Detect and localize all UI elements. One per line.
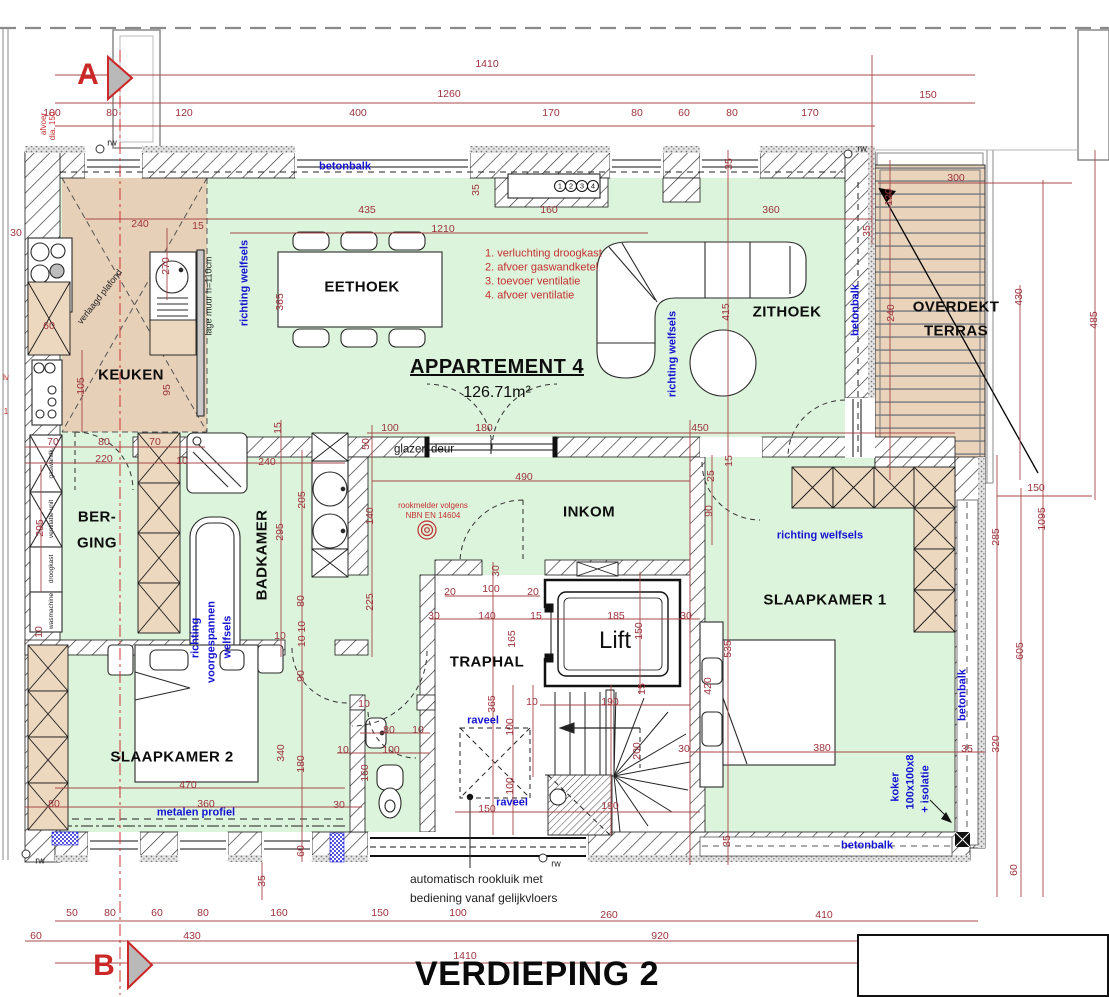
construction-annotation: raveel (496, 798, 528, 809)
dimension-label: 150 (634, 622, 645, 640)
room-label: ZITHOEK (753, 305, 822, 320)
room-label: BER- (78, 510, 116, 525)
text-annotation: verlaagd plafond (76, 268, 124, 326)
dimension-label: 160 (540, 205, 558, 216)
room-label: SLAAPKAMER 1 (763, 593, 886, 608)
dimension-label: 535 (723, 640, 734, 658)
legend-item: 3. toevoer ventilatie (485, 277, 580, 288)
construction-annotation: betonbalk (319, 162, 371, 173)
dimension-label: 35 (471, 184, 482, 196)
room-label: OVERDEKT (913, 300, 1000, 315)
construction-annotation: richting welfsels (668, 311, 679, 397)
dimension-label: 10 (176, 456, 188, 467)
dimension-label: 260 (600, 910, 618, 921)
dimension-label: 365 (275, 293, 286, 311)
dimension-label: 60 (30, 931, 42, 942)
dimension-label: 295 (35, 519, 46, 537)
dimension-label: 15 (273, 422, 284, 434)
note-red: lv (3, 374, 9, 382)
dimension-label: 120 (884, 188, 895, 206)
dimension-label: 100 (449, 908, 467, 919)
dimension-label: 80 (383, 725, 395, 736)
floor-plan-page: VERDIEPING 2 APPARTEMENT 4 126.71m² 1410… (0, 0, 1109, 997)
dimension-label: 100 (482, 584, 500, 595)
dimension-label: 605 (1015, 642, 1026, 660)
construction-annotation: metalen profiel (157, 808, 235, 819)
apartment-name: APPARTEMENT 4 (410, 357, 584, 377)
dimension-label: 80 (726, 108, 738, 119)
construction-annotation: koker (891, 772, 902, 801)
dimension-label: 165 (507, 630, 518, 648)
dimension-label: 140 (478, 611, 496, 622)
construction-annotation: voorgespannen (207, 601, 218, 683)
dimension-label: 415 (721, 303, 732, 321)
dimension-label: 380 (813, 743, 831, 754)
dimension-label: 185 (607, 611, 625, 622)
dimension-label: 30 (680, 611, 692, 622)
construction-annotation: richting welfsels (777, 531, 863, 542)
dimension-label: 10 (34, 626, 45, 638)
dimension-label: 60 (1009, 864, 1020, 876)
dimension-label: 1410 (475, 59, 498, 70)
dimension-label: 90 (704, 505, 715, 517)
dimension-label: 920 (651, 931, 669, 942)
vent-point-number: 4 (591, 182, 595, 190)
dimension-label: 80 (631, 108, 643, 119)
construction-annotation: 100x100x8 (906, 754, 917, 809)
dimension-label: 30 (333, 800, 345, 811)
dimension-label: 200 (632, 742, 643, 760)
dimension-label: 100 (505, 718, 516, 736)
dimension-label: 470 (179, 780, 197, 791)
appliance-label: droogkast (49, 555, 56, 584)
construction-annotation: betonbalk (841, 841, 893, 852)
dimension-label: 120 (175, 108, 193, 119)
dimension-label: 20 (527, 587, 539, 598)
dimension-label: 100 (505, 777, 516, 795)
dimension-label: 430 (183, 931, 201, 942)
text-annotation: rw (857, 145, 867, 154)
dimension-label: 150 (1027, 483, 1045, 494)
dimension-label: 150 (478, 804, 496, 815)
dimension-label: 240 (131, 219, 149, 230)
dimension-label: 60 (678, 108, 690, 119)
dimension-label: 15 (637, 683, 648, 695)
dimension-label: 15 (192, 221, 204, 232)
dimension-label: 150 (919, 90, 937, 101)
vent-point-number: 2 (569, 182, 573, 190)
dimension-label: 240 (258, 457, 276, 468)
dimension-label: 180 (475, 423, 493, 434)
dimension-label: 105 (76, 377, 87, 395)
dimension-label: 50 (361, 438, 372, 450)
construction-annotation: + isolatie (921, 765, 932, 812)
room-label: TRAPHAL (450, 655, 524, 670)
room-label: KEUKEN (98, 368, 164, 383)
dimension-label: 80 (197, 908, 209, 919)
construction-annotation: welfsels (223, 616, 234, 659)
dimension-label: 10 (526, 697, 538, 708)
dimension-label: 25 (706, 470, 717, 482)
dimension-label: 1095 (1037, 507, 1048, 530)
dimension-label: 420 (703, 677, 714, 695)
dimension-label: 150 (371, 908, 389, 919)
dimension-label: 15 (530, 611, 542, 622)
text-annotation: glazen deur (394, 444, 454, 456)
dimension-label: 160 (360, 764, 371, 782)
apartment-area: 126.71m² (463, 385, 531, 401)
room-label: BADKAMER (255, 510, 270, 601)
dimension-label: 20 (444, 587, 456, 598)
dimension-label: 10 (412, 725, 424, 736)
dimension-label: 170 (542, 108, 560, 119)
text-annotation: lage muur h=110cm (205, 256, 214, 335)
note-red: dia. 150 (49, 112, 57, 140)
dimension-label: 70 (47, 437, 59, 448)
dimension-label: 100 (382, 745, 400, 756)
dimension-label: 400 (349, 108, 367, 119)
note-red: rookmelder volgens (398, 502, 468, 510)
dimension-label: 80 (104, 908, 116, 919)
legend-item: 1. verluchting droogkast (485, 249, 602, 260)
dimension-label: 270 (161, 257, 172, 275)
dimension-label: 80 (296, 595, 307, 607)
dimension-label: 60 (296, 845, 307, 857)
dimension-label: 100 (381, 423, 399, 434)
dimension-label: 285 (991, 528, 1002, 546)
dimension-label: 35 (961, 744, 973, 755)
dimension-label: 435 (358, 205, 376, 216)
dimension-label: 10 (358, 699, 370, 710)
construction-annotation: richting (191, 618, 202, 658)
dimension-label: 410 (815, 910, 833, 921)
construction-annotation: richting welfsels (240, 240, 251, 326)
dimension-label: 30 (678, 744, 690, 755)
room-label: EETHOEK (324, 280, 399, 295)
dimension-label: 10 10 (297, 621, 308, 647)
text-annotation: rw (35, 857, 45, 866)
dimension-label: 80 (48, 799, 60, 810)
dimension-label: 35 (257, 875, 268, 887)
dimension-label: 450 (691, 423, 709, 434)
construction-annotation: betonbalk (958, 669, 969, 721)
dimension-label: 300 (947, 173, 965, 184)
vent-point-number: 3 (580, 182, 584, 190)
dimension-label: 35 (724, 158, 735, 170)
dimension-label: 35 (722, 835, 733, 847)
room-label: SLAAPKAMER 2 (110, 750, 233, 765)
dimension-label: 240 (886, 304, 897, 322)
dimension-label: 10 (337, 745, 349, 756)
dimension-label: 80 (106, 108, 118, 119)
dimension-label: 485 (1089, 311, 1100, 329)
note-red: NBN EN 14604 (406, 512, 461, 520)
dimension-label: 30 (491, 565, 502, 577)
dimension-label: 490 (515, 472, 533, 483)
note-red: afvoer (40, 113, 48, 135)
text-annotation: bediening vanaf gelijkvloers (410, 892, 557, 904)
dimension-label: 320 (991, 735, 1002, 753)
room-label: GING (77, 536, 117, 551)
dimension-label: 365 (487, 695, 498, 713)
dimension-label: 180 (296, 755, 307, 773)
appliance-label: wasmachine (49, 593, 56, 629)
dimension-label: 140 (365, 507, 376, 525)
dimension-label: 30 (428, 611, 440, 622)
dimension-label: 30 (10, 228, 22, 239)
section-marker-letter: B (93, 951, 115, 981)
room-label: Lift (599, 629, 631, 653)
dimension-label: 190 (601, 697, 619, 708)
room-label: INKOM (563, 505, 615, 520)
dimension-label: 190 (601, 801, 619, 812)
legend-item: 4. afvoer ventilatie (485, 291, 574, 302)
dimension-label: 205 (297, 491, 308, 509)
dimension-label: 80 (98, 437, 110, 448)
dimension-label: 170 (801, 108, 819, 119)
dimension-label: 295 (275, 523, 286, 541)
dimension-label: 50 (66, 908, 78, 919)
text-annotation: automatisch rookluik met (410, 873, 543, 885)
dimension-label: 10 (274, 631, 286, 642)
dimension-label: 70 (149, 437, 161, 448)
dimension-label: 225 (365, 593, 376, 611)
dimension-label: 1410 (453, 951, 476, 962)
construction-annotation: raveel (467, 716, 499, 727)
dimension-label: 160 (270, 908, 288, 919)
text-annotation: rw (551, 860, 561, 869)
dimension-label: 1260 (437, 89, 460, 100)
dimension-label: 430 (1014, 288, 1025, 306)
dimension-label: 1210 (431, 224, 454, 235)
dimension-label: 95 (162, 384, 173, 396)
vent-point-number: 1 (558, 182, 562, 190)
dimension-label: 35 (862, 225, 873, 237)
note-red: 1 (4, 408, 8, 416)
room-label: TERRAS (924, 324, 988, 339)
appliance-label: ventilatie-unit (49, 500, 56, 538)
dimension-label: 60 (43, 321, 55, 332)
text-annotation: rw (107, 139, 117, 148)
dimension-label: 90 (296, 670, 307, 682)
dimension-label: 360 (762, 205, 780, 216)
section-marker-letter: A (77, 60, 99, 90)
appliance-label: gaswandk. (49, 447, 56, 478)
dimension-label: 60 (151, 908, 163, 919)
construction-annotation: betonbalk (851, 284, 862, 336)
legend-item: 2. afvoer gaswandketel (485, 263, 598, 274)
dimension-label: 15 (724, 455, 735, 467)
page-title: VERDIEPING 2 (415, 957, 659, 991)
dimension-label: 220 (95, 454, 113, 465)
dimension-label: 340 (276, 744, 287, 762)
annotation-layer: VERDIEPING 2 APPARTEMENT 4 126.71m² 1410… (0, 0, 1109, 997)
